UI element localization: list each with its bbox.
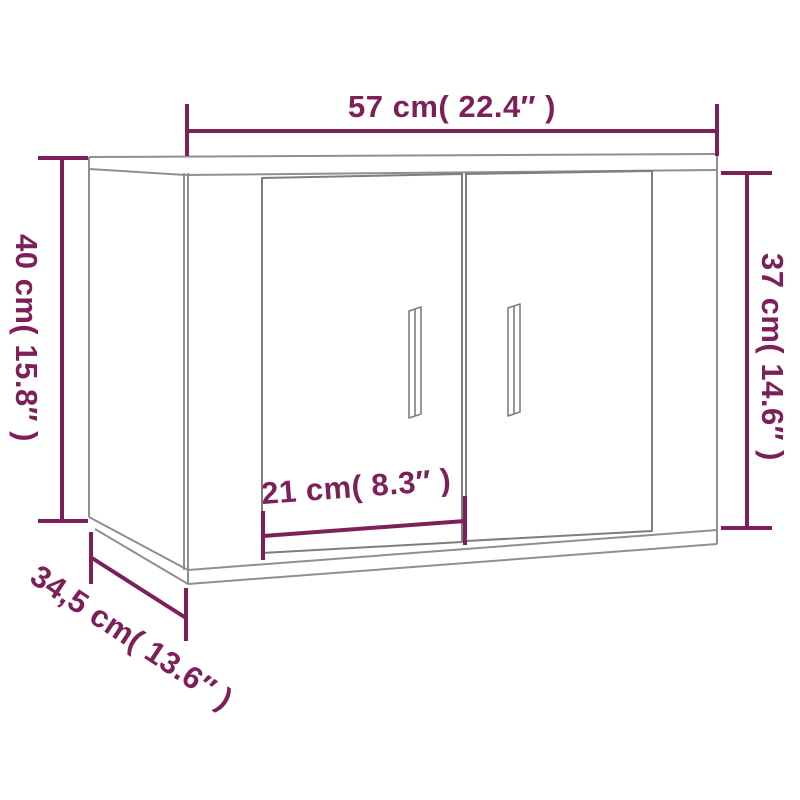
product-dimension-page: 57 cm( 22.4″ ) 40 cm( 15.8″ ) 37 cm( 14.… (0, 0, 800, 800)
width-dimension-label: 57 cm( 22.4″ ) (348, 89, 556, 124)
height-left-dimension-label: 40 cm( 15.8″ ) (9, 234, 44, 442)
wall-cabinet-dimension-diagram: 57 cm( 22.4″ ) 40 cm( 15.8″ ) 37 cm( 14.… (0, 0, 800, 800)
height-right-dimension-label: 37 cm( 14.6″ ) (755, 253, 790, 461)
